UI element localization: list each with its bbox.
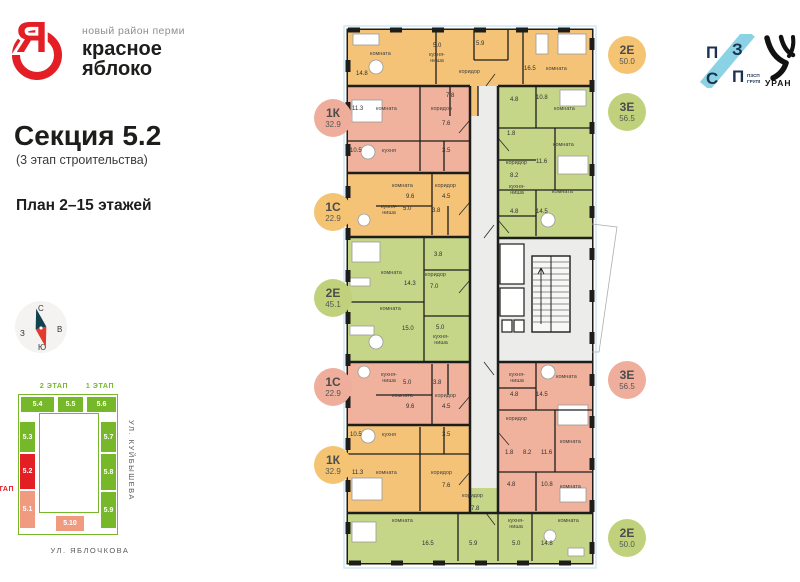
street-yablochkova-label: УЛ. ЯБЛОЧКОВА (28, 546, 152, 555)
room-area: 4.8 (510, 97, 518, 103)
logo-letter: Я (16, 13, 48, 62)
site-block-label: 5.4 (33, 401, 43, 408)
room-area: 7.8 (471, 506, 479, 512)
room-area: 8.2 (523, 450, 531, 456)
site-block-5-1[interactable]: 5.1 (19, 490, 36, 529)
site-block-label: 5.3 (23, 434, 33, 441)
room-area: 4.8 (510, 209, 518, 215)
compass-east-label: В (57, 325, 62, 334)
room-area: 5.9 (469, 541, 477, 547)
site-block-5-5[interactable]: 5.5 (57, 396, 84, 413)
site-block-label: 5.5 (66, 401, 76, 408)
room-label: кухня-ниша (424, 52, 450, 64)
site-block-label: 5.10 (63, 520, 77, 527)
room-label: комната (381, 270, 402, 276)
site-block-5-9[interactable]: 5.9 (100, 491, 117, 529)
room-area: 7.0 (430, 284, 438, 290)
room-label: комната (376, 470, 397, 476)
room-label: кухня-ниша (376, 204, 402, 216)
badge-2e-bottom-right[interactable]: 2Е 50.0 (608, 519, 646, 557)
room-area: 7.8 (446, 93, 454, 99)
room-area: 5.0 (436, 325, 444, 331)
room-label: комната (558, 518, 579, 524)
room-area: 11.3 (352, 470, 363, 476)
room-area: 3.5 (442, 148, 450, 154)
room-label: коридор (431, 106, 452, 112)
uran-logo: УРАН (762, 34, 800, 88)
room-area: 14.3 (404, 281, 416, 287)
room-area: 3.5 (442, 432, 450, 438)
badge-3e-upper[interactable]: 3Е 56.5 (608, 93, 646, 131)
room-area: 3.8 (434, 252, 442, 258)
site-block-label: 5.9 (104, 507, 114, 514)
badge-code: 3Е (620, 101, 635, 114)
room-area: 10.5 (350, 432, 362, 438)
room-area: 4.5 (442, 404, 450, 410)
room-area: 3.8 (433, 380, 441, 386)
room-label: комната (554, 106, 575, 112)
room-label: комната (380, 306, 401, 312)
badge-3e-lower[interactable]: 3Е 56.5 (608, 361, 646, 399)
stage-3-label: 3 ЭТАП (0, 486, 22, 493)
badge-1s-upper[interactable]: 1С 22.9 (314, 193, 352, 231)
room-area: 14.5 (536, 392, 548, 398)
site-block-label: 5.6 (97, 401, 107, 408)
compass-west-label: З (20, 329, 25, 338)
badge-1s-lower[interactable]: 1С 22.9 (314, 368, 352, 406)
badge-code: 1С (325, 376, 340, 389)
room-area: 11.6 (536, 159, 547, 165)
badge-area: 45.1 (325, 300, 341, 309)
room-area: 5.9 (476, 41, 484, 47)
compass-north-label: С (38, 304, 44, 313)
badge-area: 32.9 (325, 120, 341, 129)
badge-area: 50.0 (619, 57, 635, 66)
badge-code: 1К (326, 454, 340, 467)
room-label: коридор (506, 160, 527, 166)
room-area: 10.8 (536, 95, 548, 101)
room-area: 5.0 (512, 541, 520, 547)
stage-2-label: 2 ЭТАП (32, 383, 76, 390)
room-label: комната (556, 374, 577, 380)
room-label: комната (552, 189, 573, 195)
room-area: 5.0 (403, 206, 411, 212)
badge-area: 22.9 (325, 214, 341, 223)
pzsp-letter-bl: С (706, 69, 718, 88)
room-label: коридор (459, 69, 480, 75)
site-block-5-10[interactable]: 5.10 (55, 515, 85, 532)
plan-range-label: План 2–15 этажей (16, 197, 152, 215)
room-label: кухня-ниша (376, 372, 402, 384)
badge-2e-middle[interactable]: 2Е 45.1 (314, 279, 352, 317)
room-area: 4.8 (510, 392, 518, 398)
badge-code: 1К (326, 107, 340, 120)
site-block-5-2-current[interactable]: 5.2 (19, 453, 36, 490)
room-area: 8.2 (510, 173, 518, 179)
badge-2e-top-right[interactable]: 2Е 50.0 (608, 36, 646, 74)
site-block-5-8[interactable]: 5.8 (100, 453, 117, 491)
street-kuybysheva-label: УЛ. КУЙБЫШЕВА (127, 420, 136, 538)
site-block-label: 5.2 (23, 468, 33, 475)
site-plan-courtyard (39, 413, 99, 513)
pzsp-letter-br: П (732, 67, 744, 86)
room-label: комната (392, 393, 413, 399)
pzsp-caption-line1: ПЗСП (747, 73, 760, 78)
room-area: 11.6 (541, 450, 552, 456)
site-block-label: 5.8 (104, 469, 114, 476)
room-area: 9.6 (406, 194, 414, 200)
room-area: 16.5 (524, 66, 536, 72)
pzsp-caption-line2: ГРУПП (747, 79, 760, 84)
room-label: комната (560, 484, 581, 490)
room-area: 14.8 (541, 541, 553, 547)
site-block-label: 5.1 (23, 506, 33, 513)
badge-area: 32.9 (325, 467, 341, 476)
compass: С В Ю З (12, 298, 70, 356)
room-label: комната (376, 106, 397, 112)
room-label: кухня-ниша (428, 334, 454, 346)
room-area: 16.5 (422, 541, 434, 547)
site-block-label: 5.7 (104, 434, 114, 441)
room-label: комната (546, 66, 567, 72)
brand-logo: Я (10, 8, 82, 92)
badge-area: 50.0 (619, 540, 635, 549)
room-label: коридор (506, 416, 527, 422)
room-area: 4.5 (442, 194, 450, 200)
badge-code: 3Е (620, 369, 635, 382)
uran-glyph-icon (767, 37, 793, 78)
room-area: 11.3 (352, 106, 363, 112)
apartment-1k-upper[interactable] (348, 86, 470, 173)
site-block-5-7[interactable]: 5.7 (100, 421, 117, 453)
badge-area: 22.9 (325, 389, 341, 398)
pzsp-letter-tr: З (732, 40, 743, 59)
room-area: 7.6 (442, 121, 450, 127)
room-label: коридор (435, 183, 456, 189)
room-label: кухня-ниша (504, 184, 530, 196)
badge-1k-lower[interactable]: 1К 32.9 (314, 446, 352, 484)
room-label: кухня (382, 432, 396, 438)
room-label: комната (370, 51, 391, 57)
room-area: 14.8 (356, 71, 368, 77)
room-label: комната (392, 183, 413, 189)
room-area: 7.6 (442, 483, 450, 489)
badge-1k-upper[interactable]: 1К 32.9 (314, 99, 352, 137)
staircase (532, 256, 570, 332)
room-area: 14.5 (536, 209, 548, 215)
room-area: 10.5 (350, 148, 362, 154)
room-area: 1.8 (505, 450, 513, 456)
room-area: 15.0 (402, 326, 414, 332)
pzsp-logo: П З С П ПЗСП ГРУПП (698, 34, 760, 88)
room-area: 3.8 (432, 208, 440, 214)
room-label: комната (560, 439, 581, 445)
badge-code: 2Е (326, 287, 341, 300)
room-label: комната (392, 518, 413, 524)
pzsp-letter-tl: П (706, 43, 718, 62)
room-area: 5.0 (433, 43, 441, 49)
brand-tagline: новый район перми (82, 25, 185, 37)
room-label: коридор (435, 393, 456, 399)
page-title: Секция 5.2 (14, 120, 161, 152)
room-label: кухня-ниша (503, 518, 529, 530)
corridor-core (470, 86, 498, 513)
badge-code: 2Е (620, 527, 635, 540)
room-area: 5.0 (403, 380, 411, 386)
room-area: 9.6 (406, 404, 414, 410)
badge-code: 1С (325, 201, 340, 214)
badge-code: 2Е (620, 44, 635, 57)
stage-1-label: 1 ЭТАП (78, 383, 122, 390)
room-label: кухня (382, 148, 396, 154)
room-area: 1.8 (507, 131, 515, 137)
site-block-5-3[interactable]: 5.3 (19, 421, 36, 453)
page-subtitle: (3 этап строительства) (16, 153, 148, 167)
room-label: комната (553, 142, 574, 148)
room-label: кухня-ниша (504, 372, 530, 384)
room-label: коридор (462, 493, 483, 499)
site-block-5-4[interactable]: 5.4 (20, 396, 55, 413)
room-area: 4.8 (507, 482, 515, 488)
brand-name-line2: яблоко (82, 58, 152, 81)
uran-caption: УРАН (765, 78, 792, 88)
room-label: коридор (431, 470, 452, 476)
badge-area: 56.5 (619, 382, 635, 391)
room-area: 10.8 (541, 482, 553, 488)
site-block-5-6[interactable]: 5.6 (86, 396, 117, 413)
badge-area: 56.5 (619, 114, 635, 123)
room-label: коридор (425, 272, 446, 278)
